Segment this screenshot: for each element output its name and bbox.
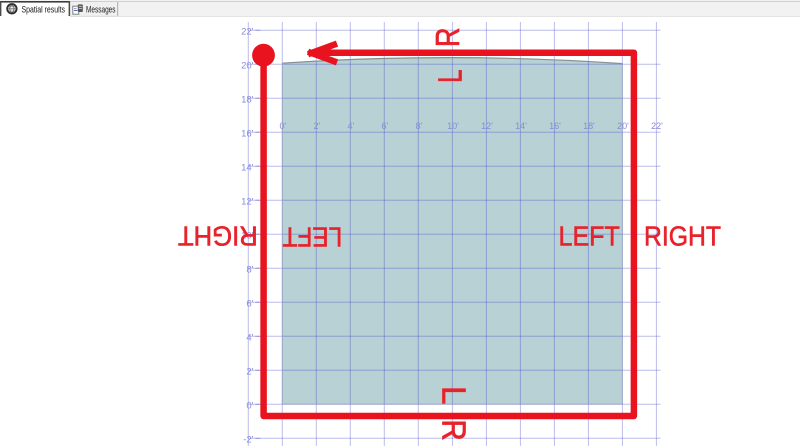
svg-text:22': 22' xyxy=(241,27,254,38)
svg-text:12': 12' xyxy=(241,197,254,208)
svg-text:Messages: Messages xyxy=(86,4,116,14)
svg-text:2': 2' xyxy=(314,121,321,131)
svg-text:RIGHT: RIGHT xyxy=(178,220,258,251)
svg-text:LEFT: LEFT xyxy=(559,220,620,251)
svg-text:LEFT: LEFT xyxy=(283,221,343,252)
svg-text:14': 14' xyxy=(515,121,527,131)
svg-text:8': 8' xyxy=(246,265,253,276)
svg-text:20': 20' xyxy=(617,121,629,131)
svg-text:R: R xyxy=(429,27,466,47)
svg-text:R: R xyxy=(436,419,473,440)
svg-text:20': 20' xyxy=(241,61,254,72)
svg-text:RIGHT: RIGHT xyxy=(644,220,721,251)
svg-text:0': 0' xyxy=(246,401,253,412)
svg-text:12': 12' xyxy=(481,121,493,131)
svg-text:10': 10' xyxy=(447,121,459,131)
svg-text:14': 14' xyxy=(241,163,254,174)
svg-text:L: L xyxy=(432,70,469,83)
svg-text:16': 16' xyxy=(241,129,254,140)
svg-text:4': 4' xyxy=(348,121,355,131)
svg-text:18': 18' xyxy=(583,121,595,131)
svg-text:6': 6' xyxy=(246,299,253,310)
svg-text:2': 2' xyxy=(246,367,253,378)
svg-text:8': 8' xyxy=(416,121,423,131)
svg-text:Spatial results: Spatial results xyxy=(22,4,66,14)
svg-text:-2': -2' xyxy=(243,435,253,446)
svg-text:0': 0' xyxy=(280,121,287,131)
svg-text:4': 4' xyxy=(246,333,253,344)
svg-text:6': 6' xyxy=(382,121,389,131)
svg-text:22': 22' xyxy=(651,121,663,131)
svg-text:L: L xyxy=(436,386,473,404)
svg-text:16': 16' xyxy=(549,121,561,131)
svg-text:18': 18' xyxy=(241,95,254,106)
